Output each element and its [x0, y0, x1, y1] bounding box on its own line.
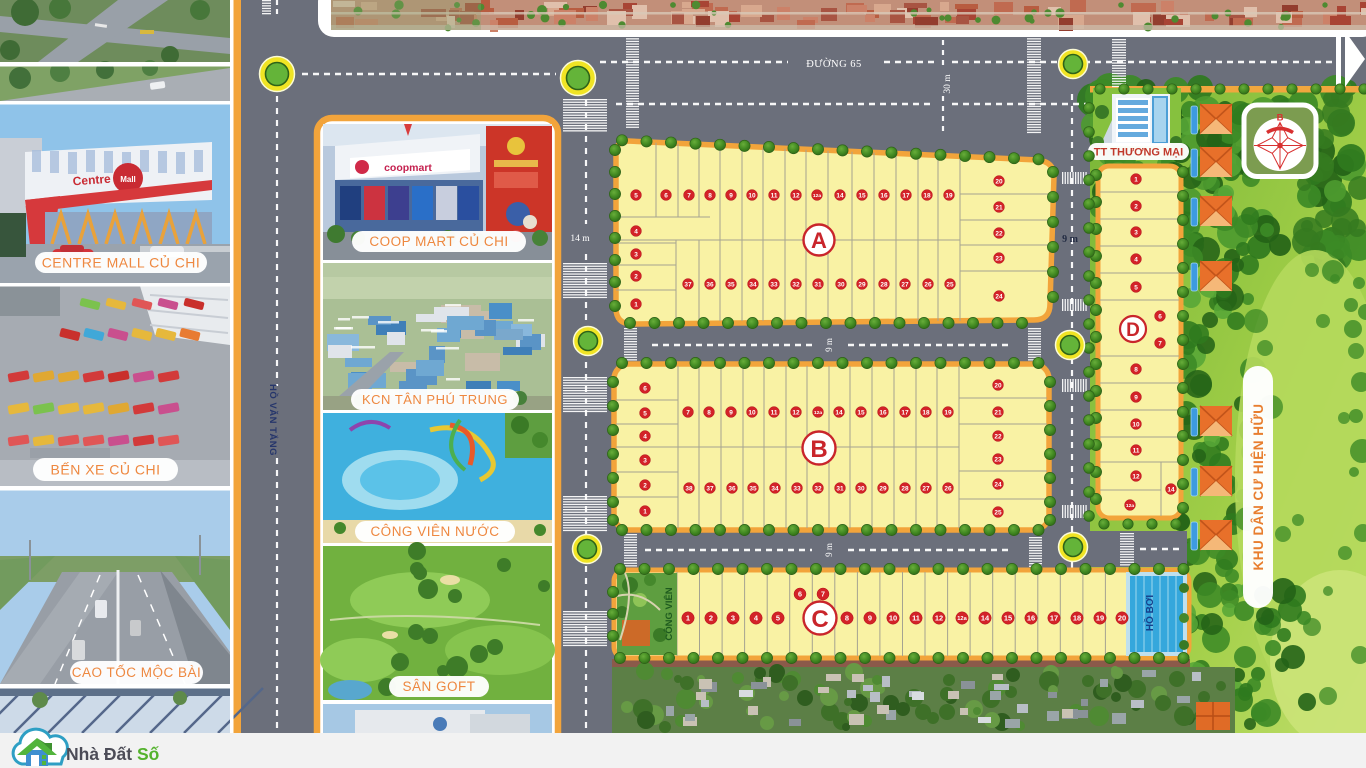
svg-text:14: 14 [835, 409, 843, 416]
svg-text:7: 7 [687, 192, 691, 199]
svg-text:14 m: 14 m [570, 234, 590, 244]
svg-text:5: 5 [634, 192, 638, 199]
svg-text:35: 35 [727, 281, 735, 288]
svg-text:27: 27 [901, 281, 909, 288]
svg-text:26: 26 [944, 485, 952, 492]
svg-text:CÔNG VIÊN NƯỚC: CÔNG VIÊN NƯỚC [370, 524, 499, 539]
svg-text:32: 32 [814, 485, 822, 492]
svg-text:21: 21 [995, 204, 1003, 211]
svg-text:10: 10 [748, 409, 756, 416]
svg-text:12a: 12a [1126, 503, 1135, 509]
svg-text:26: 26 [924, 281, 932, 288]
svg-text:33: 33 [793, 485, 801, 492]
svg-text:17: 17 [901, 409, 909, 416]
svg-text:2: 2 [709, 614, 713, 623]
svg-text:17: 17 [1050, 614, 1058, 623]
svg-text:B: B [1277, 113, 1284, 124]
svg-text:D: D [1126, 320, 1140, 341]
svg-text:18: 18 [922, 409, 930, 416]
svg-text:1: 1 [1134, 176, 1138, 183]
svg-text:17: 17 [902, 192, 910, 199]
svg-text:1: 1 [643, 508, 647, 515]
svg-text:28: 28 [880, 281, 888, 288]
svg-text:12: 12 [792, 192, 800, 199]
svg-text:34: 34 [749, 281, 757, 288]
svg-text:3: 3 [731, 614, 735, 623]
svg-text:5: 5 [1134, 284, 1138, 291]
svg-text:2: 2 [1134, 203, 1138, 210]
svg-text:18: 18 [923, 192, 931, 199]
svg-text:11: 11 [771, 192, 778, 199]
svg-text:12: 12 [935, 614, 943, 623]
svg-text:29: 29 [879, 485, 887, 492]
svg-text:36: 36 [706, 281, 714, 288]
svg-text:25: 25 [994, 509, 1002, 516]
svg-text:7: 7 [1158, 340, 1162, 347]
svg-text:5: 5 [643, 410, 647, 417]
svg-text:7: 7 [821, 590, 825, 599]
svg-text:CAO TỐC MỘC BÀI: CAO TỐC MỘC BÀI [72, 665, 202, 680]
svg-text:CÔNG VIÊN: CÔNG VIÊN [663, 587, 675, 640]
svg-text:18: 18 [1073, 614, 1081, 623]
svg-text:30: 30 [857, 485, 865, 492]
svg-text:28: 28 [901, 485, 909, 492]
svg-text:9: 9 [1134, 394, 1138, 401]
svg-text:10: 10 [889, 614, 897, 623]
svg-text:9 m: 9 m [824, 543, 834, 557]
svg-text:16: 16 [880, 192, 888, 199]
svg-text:9 m: 9 m [1062, 234, 1079, 245]
svg-text:3: 3 [634, 251, 638, 258]
svg-text:9: 9 [729, 192, 733, 199]
svg-text:BẾN XE CỦ CHI: BẾN XE CỦ CHI [51, 460, 161, 477]
svg-text:36: 36 [728, 485, 736, 492]
svg-text:HỒ VĂN TẮNG: HỒ VĂN TẮNG [267, 384, 279, 456]
svg-text:22: 22 [995, 230, 1003, 237]
svg-text:COOP MART CỦ CHI: COOP MART CỦ CHI [369, 234, 508, 249]
svg-text:15: 15 [1004, 614, 1012, 623]
svg-text:12a: 12a [814, 410, 823, 416]
svg-text:23: 23 [994, 456, 1002, 463]
svg-text:ĐƯỜNG 65: ĐƯỜNG 65 [806, 58, 862, 70]
svg-text:38: 38 [685, 485, 693, 492]
svg-text:35: 35 [749, 485, 757, 492]
svg-text:24: 24 [995, 293, 1003, 300]
svg-text:11: 11 [771, 409, 778, 416]
svg-text:3: 3 [643, 457, 647, 464]
svg-text:B: B [810, 436, 827, 463]
svg-text:10: 10 [1132, 421, 1140, 428]
svg-text:14: 14 [836, 192, 844, 199]
svg-text:31: 31 [836, 485, 844, 492]
svg-text:C: C [811, 606, 828, 633]
svg-text:30 m: 30 m [943, 74, 953, 94]
svg-text:32: 32 [792, 281, 800, 288]
svg-text:8: 8 [845, 614, 849, 623]
svg-text:20: 20 [994, 382, 1002, 389]
svg-text:22: 22 [994, 433, 1002, 440]
svg-text:12a: 12a [813, 193, 822, 199]
svg-text:coopmart: coopmart [384, 162, 432, 174]
svg-text:11: 11 [912, 614, 920, 623]
svg-text:27: 27 [922, 485, 930, 492]
svg-text:9: 9 [729, 409, 733, 416]
svg-text:A: A [811, 228, 827, 253]
svg-text:5: 5 [776, 614, 780, 623]
svg-text:9 m: 9 m [824, 338, 834, 352]
svg-text:HỒ BƠI: HỒ BƠI [1143, 595, 1156, 632]
svg-text:6: 6 [664, 192, 668, 199]
svg-text:14: 14 [1167, 486, 1175, 493]
svg-text:6: 6 [798, 590, 802, 599]
svg-text:SÂN GOFT: SÂN GOFT [402, 679, 475, 694]
svg-text:33: 33 [770, 281, 778, 288]
svg-text:34: 34 [771, 485, 779, 492]
svg-text:19: 19 [1096, 614, 1104, 623]
svg-text:8: 8 [1134, 366, 1138, 373]
svg-text:19: 19 [944, 409, 952, 416]
svg-text:1: 1 [634, 301, 638, 308]
svg-text:23: 23 [995, 255, 1003, 262]
svg-text:7: 7 [686, 409, 690, 416]
svg-text:KCN TÂN PHÚ TRUNG: KCN TÂN PHÚ TRUNG [362, 392, 508, 407]
svg-text:30: 30 [837, 281, 845, 288]
svg-text:Mall: Mall [120, 175, 136, 184]
svg-text:2: 2 [643, 482, 647, 489]
svg-text:12a: 12a [957, 616, 967, 622]
svg-text:2: 2 [634, 273, 638, 280]
svg-text:16: 16 [879, 409, 887, 416]
svg-text:19: 19 [945, 192, 953, 199]
svg-text:21: 21 [994, 409, 1002, 416]
svg-text:CENTRE MALL CỦ CHI: CENTRE MALL CỦ CHI [42, 253, 201, 270]
svg-text:8: 8 [707, 409, 711, 416]
svg-text:31: 31 [814, 281, 822, 288]
svg-text:25: 25 [946, 281, 954, 288]
svg-text:14: 14 [981, 614, 990, 623]
svg-text:11: 11 [1133, 447, 1140, 454]
svg-text:Centre: Centre [72, 172, 111, 189]
svg-text:29: 29 [858, 281, 866, 288]
svg-text:20: 20 [1118, 614, 1126, 623]
svg-text:12: 12 [1132, 473, 1140, 480]
svg-text:KHU DÂN CƯ HIỆN HỮU: KHU DÂN CƯ HIỆN HỮU [1251, 404, 1266, 571]
svg-text:15: 15 [858, 192, 866, 199]
svg-text:16: 16 [1027, 614, 1035, 623]
svg-text:6: 6 [1158, 313, 1162, 320]
svg-text:6: 6 [643, 385, 647, 392]
svg-text:24: 24 [994, 481, 1002, 488]
svg-text:10: 10 [748, 192, 756, 199]
svg-text:37: 37 [684, 281, 692, 288]
svg-text:3: 3 [1134, 229, 1138, 236]
svg-text:4: 4 [634, 228, 638, 235]
svg-text:15: 15 [857, 409, 865, 416]
svg-text:8: 8 [708, 192, 712, 199]
svg-text:37: 37 [706, 485, 714, 492]
svg-text:9: 9 [868, 614, 872, 623]
svg-text:4: 4 [1134, 256, 1138, 263]
svg-text:TT THƯƠNG MẠI: TT THƯƠNG MẠI [1094, 146, 1183, 158]
svg-text:1: 1 [686, 614, 690, 623]
svg-text:20: 20 [995, 178, 1003, 185]
svg-text:12: 12 [792, 409, 800, 416]
svg-text:4: 4 [643, 433, 647, 440]
svg-text:Nhà Đất Số: Nhà Đất Số [66, 744, 160, 764]
